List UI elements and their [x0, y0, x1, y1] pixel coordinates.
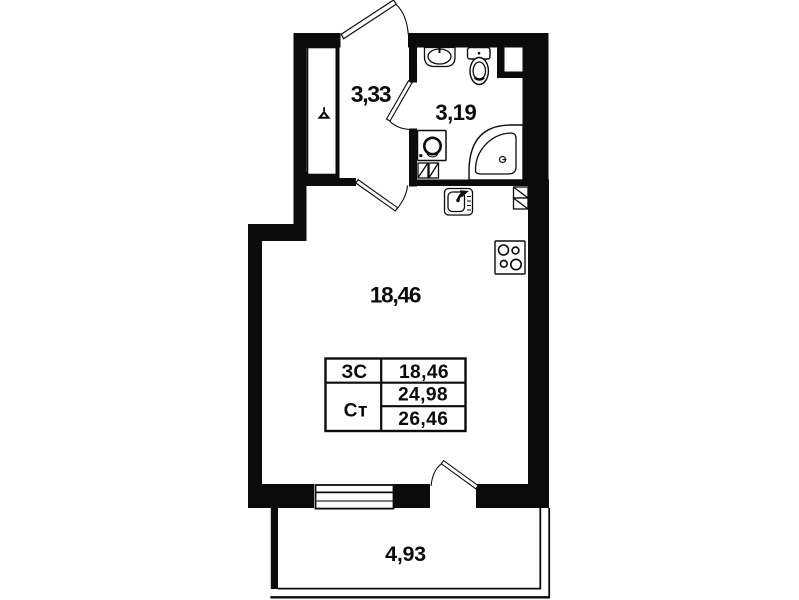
- svg-text:ЗС: ЗС: [341, 362, 367, 383]
- svg-text:18,46: 18,46: [399, 362, 449, 383]
- svg-text:26,46: 26,46: [398, 409, 448, 430]
- svg-text:3,33: 3,33: [351, 81, 391, 107]
- svg-text:3,19: 3,19: [435, 100, 476, 125]
- svg-text:4,93: 4,93: [385, 542, 426, 566]
- svg-text:Ст: Ст: [344, 400, 368, 421]
- svg-text:24,98: 24,98: [398, 385, 448, 406]
- svg-text:18,46: 18,46: [370, 283, 421, 308]
